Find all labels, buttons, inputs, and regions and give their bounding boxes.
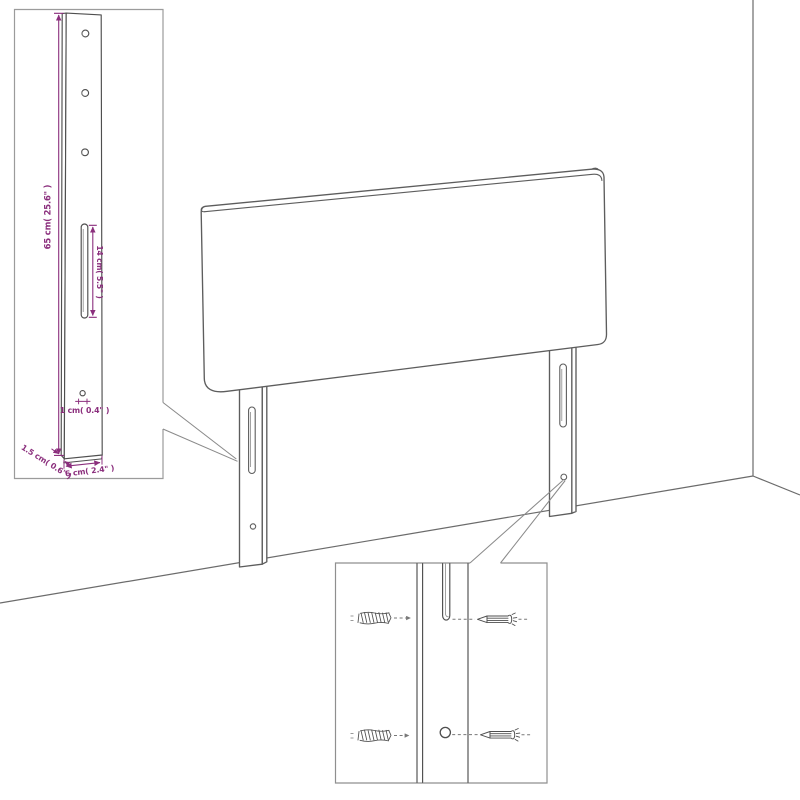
thickness-arrow-upper	[52, 449, 59, 454]
hole-label: 1 cm( 0.4" )	[60, 406, 110, 415]
leader-left-lower	[163, 429, 238, 461]
headboard-panel	[201, 168, 606, 392]
dimension-leg-height: 65 cm( 25.6" )	[43, 13, 64, 455]
inset-mounting-border	[336, 563, 548, 783]
board-hole-closeup	[440, 727, 450, 737]
headboard-assembly-diagram-page: 65 cm( 25.6" ) 14 cm( 5.5" ) 1 cm( 0.4" …	[0, 0, 800, 800]
inset-leg-dimensions: 65 cm( 25.6" ) 14 cm( 5.5" ) 1 cm( 0.4" …	[15, 10, 164, 481]
floor-line-right	[753, 476, 800, 495]
wall-plug-icon	[351, 730, 392, 742]
slot-length-label: 14 cm( 5.5" )	[95, 245, 104, 298]
leader-right-b	[501, 481, 566, 564]
headboard-right-leg	[550, 346, 577, 516]
screw-icon	[478, 613, 517, 626]
headboard-left-leg	[240, 385, 267, 567]
left-leg-slot	[249, 407, 256, 474]
inset-mounting-detail	[336, 563, 548, 783]
diagram-canvas: 65 cm( 25.6" ) 14 cm( 5.5" ) 1 cm( 0.4" …	[0, 0, 800, 800]
board-slot-closeup	[443, 564, 450, 620]
board-slot-closeup-shadow	[445, 564, 448, 617]
dimension-width: 6 cm( 2.4" )	[64, 456, 115, 479]
floor-line-left	[0, 476, 753, 603]
right-leg-slot	[560, 364, 567, 427]
leader-left-upper	[163, 403, 236, 460]
screw-icon	[481, 729, 520, 742]
left-leg-side-face	[262, 385, 267, 564]
leg-height-label: 65 cm( 25.6" )	[43, 184, 53, 249]
inset-leg-leader-lines	[163, 403, 238, 462]
post-slot	[81, 224, 88, 318]
panel-front-face	[201, 169, 606, 392]
wall-plug-icon	[351, 612, 392, 624]
